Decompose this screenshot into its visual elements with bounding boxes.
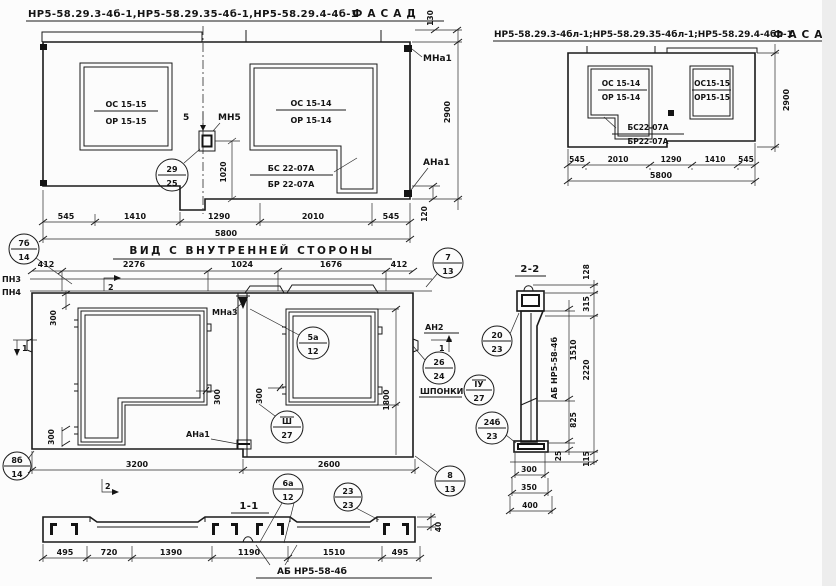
dim-300-lines [62, 291, 284, 447]
section-profile [43, 517, 415, 542]
callout-leader [413, 346, 425, 360]
dim-2600: 2600 [318, 460, 341, 469]
dim-label: 350 [521, 483, 537, 492]
dim-label: 495 [57, 548, 74, 557]
frame-hinge-tabs [74, 320, 382, 434]
callout-bottom: 23 [342, 501, 353, 510]
panel-joint-lines [238, 293, 247, 457]
sill-mark-bot: БР22-07А [627, 137, 668, 146]
arrowhead-icon [200, 125, 206, 131]
callout-top: 7б [18, 238, 30, 248]
sill-mark-top: БС22-07А [627, 123, 668, 132]
callout-top: 6а [283, 479, 294, 488]
edge-anchor-icon [404, 190, 412, 197]
callout-top: 20 [491, 331, 503, 340]
elevation-a-view-label: ФАСАД [352, 8, 421, 20]
dim-115: 115 [582, 451, 591, 467]
arrowhead-icon [14, 349, 20, 356]
callout-top: 8б [11, 455, 23, 465]
section-2-marker: 2 [108, 283, 114, 292]
dim-1510: 1510 [569, 340, 578, 361]
mna3-label: МНа3 [212, 308, 238, 317]
callout-top: 7 [445, 253, 451, 262]
arrowhead-icon [114, 275, 121, 281]
callout-bottom: 12 [282, 493, 293, 502]
dim-label: 1510 [323, 548, 346, 557]
dim-label: 2276 [123, 260, 146, 269]
dim-label: 545 [58, 212, 75, 221]
dim-label: 1676 [320, 260, 343, 269]
dim-300: 300 [49, 310, 58, 326]
dim-label: 2010 [302, 212, 325, 221]
callout-top: 24б [484, 417, 501, 427]
dim-label: 412 [38, 260, 55, 269]
drawing-sheet: НР5-58.29.3-4б-1,НР5-58.29.35-4б-1,НР5-5… [0, 0, 836, 586]
dim-label: 720 [101, 548, 118, 557]
dim-2900: 2900 [782, 88, 791, 111]
elevation-a: НР5-58.29.3-4б-1,НР5-58.29.35-4б-1,НР5-5… [26, 8, 462, 243]
elevation-b: НР5-58.29.3-4бл-1;НР5-58.29.35-4бл-1;НР5… [493, 29, 836, 186]
dim-3200: 3200 [126, 460, 149, 469]
callout-top: Ш [282, 417, 292, 426]
dim-1020: 1020 [219, 162, 228, 183]
ana1-leader [211, 439, 238, 444]
ana1-leader [411, 168, 428, 190]
anchor-square-icon [668, 110, 674, 116]
dim-825: 825 [569, 412, 578, 428]
dim-300: 300 [255, 388, 264, 404]
dim-label: 1390 [160, 548, 183, 557]
window-right-mark-top: ОС15-15 [694, 79, 730, 88]
dim-2900: 2900 [443, 100, 452, 123]
arrowhead-icon [112, 489, 119, 495]
callout-bottom: 23 [486, 432, 497, 441]
an2-label: АН2 [425, 323, 443, 332]
elevation-b-title: НР5-58.29.3-4бл-1;НР5-58.29.35-4бл-1;НР5… [494, 29, 793, 40]
window-right-mark-top: ОС 15-14 [290, 99, 331, 108]
pn4-label: ПН4 [2, 288, 21, 297]
ab-panel-mark: АБ НР5-58-4б [277, 566, 347, 577]
dim-bottom-lines [32, 451, 415, 474]
callout-bottom: 27 [473, 394, 484, 403]
callout-bottom: 14 [11, 470, 23, 479]
anchor-loop-icons [50, 523, 409, 535]
dim-label: 400 [522, 501, 538, 510]
window-left-mark-top: ОС 15-15 [105, 100, 146, 109]
window-left-mark-top: ОС 15-14 [602, 79, 640, 88]
section-body-lines [521, 313, 537, 442]
dim-label: 495 [392, 548, 409, 557]
callout-top: ІУ [474, 380, 483, 389]
callout-top: 5а [308, 333, 319, 342]
section-1-marker: 1 [22, 344, 28, 353]
callout-bottom: 14 [18, 253, 30, 262]
foot-channel-core [518, 444, 544, 449]
lifting-point-ticks [246, 30, 381, 42]
ana1-label: АНа1 [423, 158, 450, 168]
top-flashing-strips [245, 285, 378, 293]
dim-label: 1290 [661, 155, 682, 164]
dim-label: 1190 [238, 548, 261, 557]
mn5-anchor-core [203, 136, 212, 147]
dim-label: 2010 [608, 155, 629, 164]
callout-leader [250, 309, 299, 335]
sill-mark-bot: БР 22-07А [268, 180, 315, 189]
callout-leader [510, 313, 519, 334]
callout-bottom: 25 [166, 179, 178, 188]
sill-mark-top: БС 22-07А [268, 164, 315, 173]
callout-top: 26 [433, 358, 445, 367]
callout-leader [426, 274, 437, 287]
dim-25: 25 [554, 451, 563, 461]
edge-anchor-icon [40, 180, 47, 186]
ab-panel-mark-vertical: АБ НР5-58-4б [549, 337, 559, 400]
callout-leader [356, 508, 379, 520]
callout-top: 23 [342, 487, 353, 496]
top-channel-core [522, 295, 539, 306]
lifting-point-ticks [587, 46, 655, 53]
edge-anchor-icon [40, 44, 47, 50]
window-left-mark-bot: ОР 15-15 [105, 117, 146, 126]
mn5-label: МН5 [218, 113, 241, 123]
section-1-1: 1-1 495 720 1390 1190 1510 495 40 АБ НР5… [39, 474, 443, 578]
window-right-mark-bot: ОР15-15 [694, 93, 730, 102]
ana1-label: АНа1 [186, 430, 210, 439]
window-right-frame [250, 64, 377, 193]
section-1-1-title: 1-1 [239, 501, 258, 512]
opening-right-frame [286, 309, 378, 405]
callout-top: 29 [166, 165, 178, 174]
section-2-2-title: 2-2 [520, 264, 539, 275]
dim-row-lines [43, 544, 420, 562]
callout-bottom: 27 [281, 431, 292, 440]
window-right-mark-bot: ОР 15-14 [290, 116, 331, 125]
callout-leader [415, 456, 437, 472]
section-body [521, 311, 543, 442]
callout-bottom: 13 [444, 485, 455, 494]
dim-label: 412 [391, 260, 408, 269]
dim-label: 300 [521, 465, 537, 474]
dim-315: 315 [582, 296, 591, 312]
mn5-anchor-box [199, 131, 215, 151]
dim-ticks [62, 291, 283, 446]
callout-5: 5 [183, 113, 189, 123]
dim-row-line [32, 271, 413, 291]
callout-top: 8 [447, 471, 453, 480]
sill-leader [604, 117, 616, 128]
label-leaders [256, 545, 297, 565]
mna1-label: МНа1 [423, 54, 452, 64]
scan-edge-shade [822, 0, 836, 586]
callout-leader [259, 404, 275, 416]
dim-label: 545 [569, 155, 585, 164]
pn3-label: ПН3 [2, 275, 21, 284]
section-2-marker: 2 [105, 482, 111, 491]
dim-label: 1410 [705, 155, 726, 164]
dim-label: 545 [738, 155, 754, 164]
callout-bottom: 24 [433, 372, 445, 381]
callout-bottom: 13 [442, 267, 453, 276]
dim-label: 545 [383, 212, 400, 221]
edge-anchor-icon [404, 45, 412, 52]
dim-1800: 1800 [382, 390, 391, 411]
mn5-leader [213, 123, 220, 131]
panel-outline [32, 293, 413, 457]
panel-top-strip [42, 32, 202, 42]
callout-leader [184, 149, 200, 163]
dim-total-5800: 5800 [650, 171, 673, 180]
dim-40: 40 [434, 522, 443, 532]
dim-2900-lines [757, 44, 779, 152]
callout-bottom: 12 [307, 347, 318, 356]
arrowhead-icon [446, 335, 452, 342]
window-left-mark-bot: ОР 15-14 [602, 93, 640, 102]
callout-bottom: 23 [491, 345, 502, 354]
dim-2220: 2220 [582, 360, 591, 381]
mna1-leader [412, 49, 422, 57]
dim-label: 1290 [208, 212, 231, 221]
dim-300: 300 [213, 389, 222, 405]
shponki-label: ШПОНКИ [420, 387, 463, 396]
dim-300: 300 [47, 429, 56, 445]
dim-128: 128 [582, 264, 591, 280]
dim-1800-lines [378, 309, 399, 455]
elevation-a-title: НР5-58.29.3-4б-1,НР5-58.29.35-4б-1,НР5-5… [28, 8, 358, 20]
dim-120: 120 [420, 206, 429, 222]
callout-leader [506, 435, 516, 443]
opening-left-frame [78, 308, 207, 445]
dim-total-5800: 5800 [215, 229, 238, 238]
interior-view-title: ВИД С ВНУТРЕННЕЙ СТОРОНЫ [129, 244, 374, 257]
interior-view: ВИД С ВНУТРЕННЕЙ СТОРОНЫ ПН3 ПН4 7б 14 7… [2, 234, 494, 496]
callout-leader [28, 451, 34, 459]
edge-anchor-pockets [27, 339, 418, 352]
dim-label: 1024 [231, 260, 254, 269]
panel-working-drawing: НР5-58.29.3-4б-1,НР5-58.29.35-4б-1,НР5-5… [0, 0, 836, 586]
dim-label: 1410 [124, 212, 147, 221]
dim-130: 130 [426, 10, 435, 26]
